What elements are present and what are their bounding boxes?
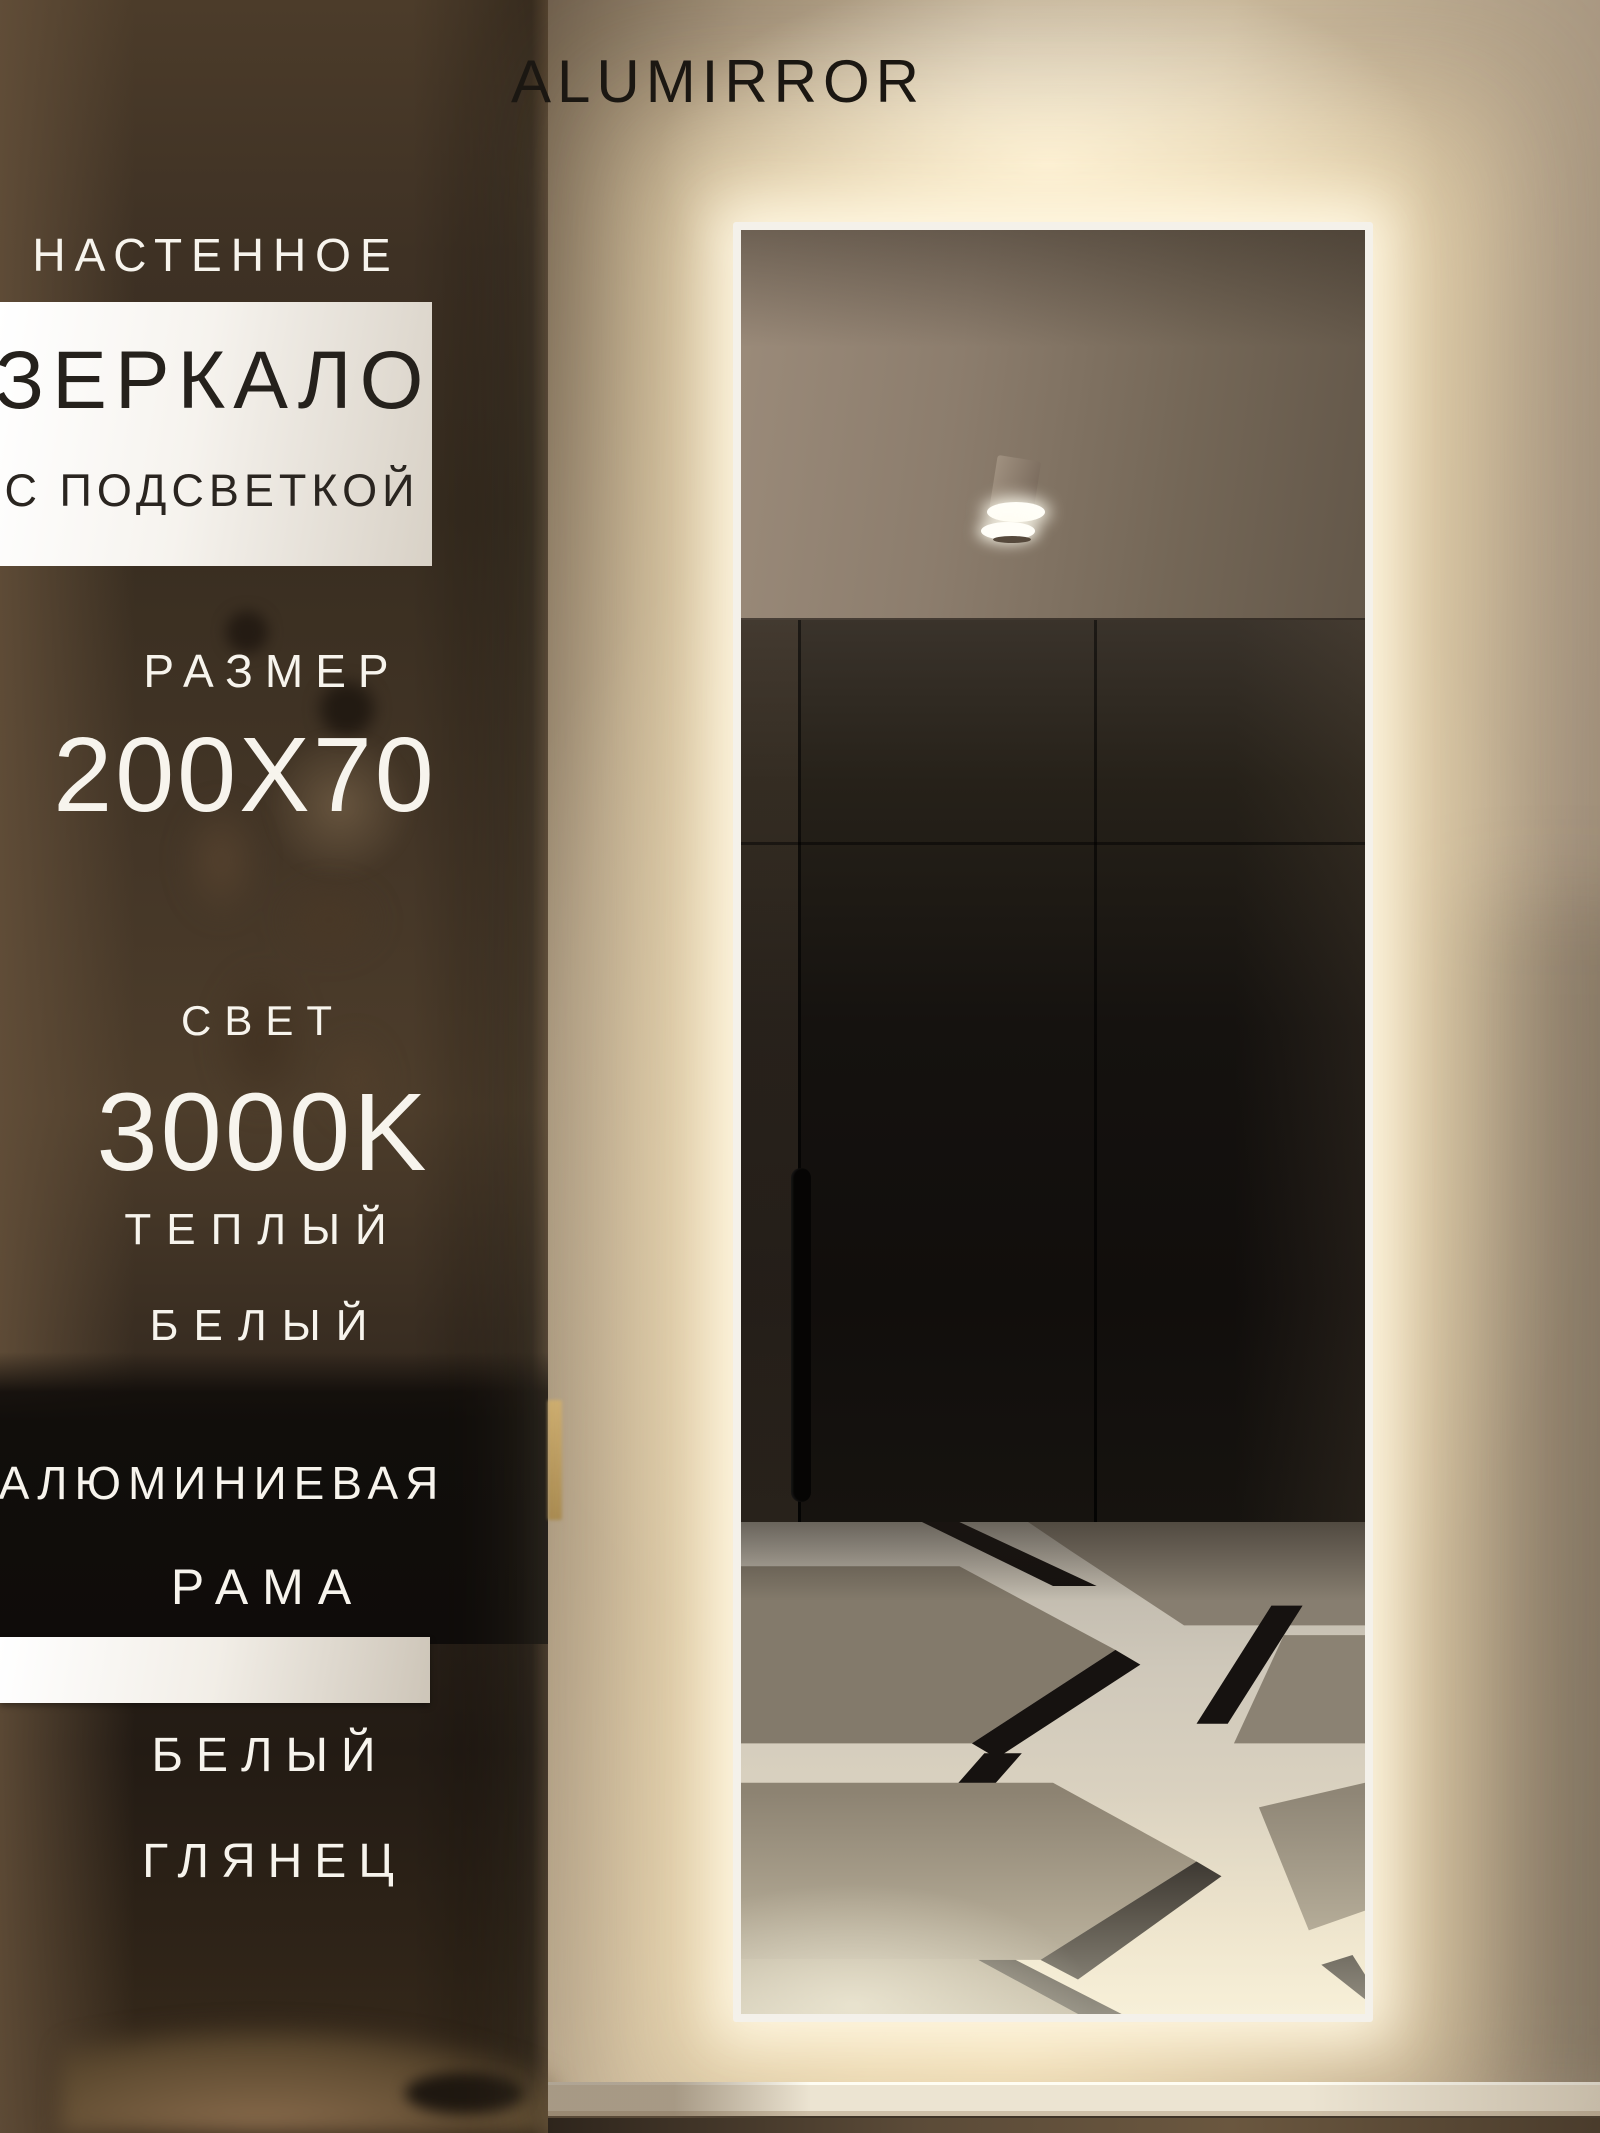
label-with-backlight: С ПОДСВЕТКОЙ — [5, 468, 420, 513]
brand-title: ALUMIRROR — [511, 52, 925, 112]
label-finish-white: БЕЛЫЙ — [151, 1732, 388, 1780]
gold-door-handle — [548, 1400, 562, 1520]
blurred-floor-object — [405, 2072, 525, 2114]
label-white: БЕЛЫЙ — [150, 1304, 383, 1348]
wardrobe-panel-seam — [741, 842, 1365, 845]
value-size: 200X70 — [53, 722, 436, 828]
label-finish-gloss: ГЛЯНЕЦ — [142, 1838, 406, 1886]
label-light: СВЕТ — [181, 1000, 345, 1042]
reflection-wardrobe — [741, 620, 1365, 1522]
mirror-frame — [733, 222, 1373, 2022]
value-color-temperature: 3000K — [96, 1078, 429, 1188]
wardrobe-panel-seam — [1094, 620, 1097, 1522]
ceiling-light-base — [993, 536, 1031, 543]
label-product: ЗЕРКАЛО — [0, 340, 431, 422]
reflection-tiled-floor — [741, 1522, 1365, 2014]
label-wall-mounted: НАСТЕННОЕ — [32, 232, 399, 278]
label-size: РАЗМЕР — [143, 648, 400, 694]
mirror-glass — [741, 230, 1365, 2014]
label-aluminium: АЛЮМИНИЕВАЯ — [0, 1460, 445, 1506]
room-floor-edge — [548, 2118, 1600, 2133]
floor-led-glow — [741, 1522, 1365, 2014]
ceiling-light-disc — [987, 502, 1045, 522]
label-frame: РАМА — [171, 1562, 365, 1612]
product-photo-scene: ALUMIRROR НАСТЕННОЕ ЗЕРКАЛО С ПОДСВЕТКОЙ… — [0, 0, 1600, 2133]
reflection-ceiling — [741, 230, 1365, 620]
highlight-band-separator — [0, 1637, 430, 1703]
wall-shadow — [1450, 900, 1600, 2100]
label-warm: ТЕПЛЫЙ — [124, 1208, 401, 1252]
wardrobe-door-handle — [791, 1168, 811, 1502]
baseboard-shading — [548, 2082, 1600, 2122]
